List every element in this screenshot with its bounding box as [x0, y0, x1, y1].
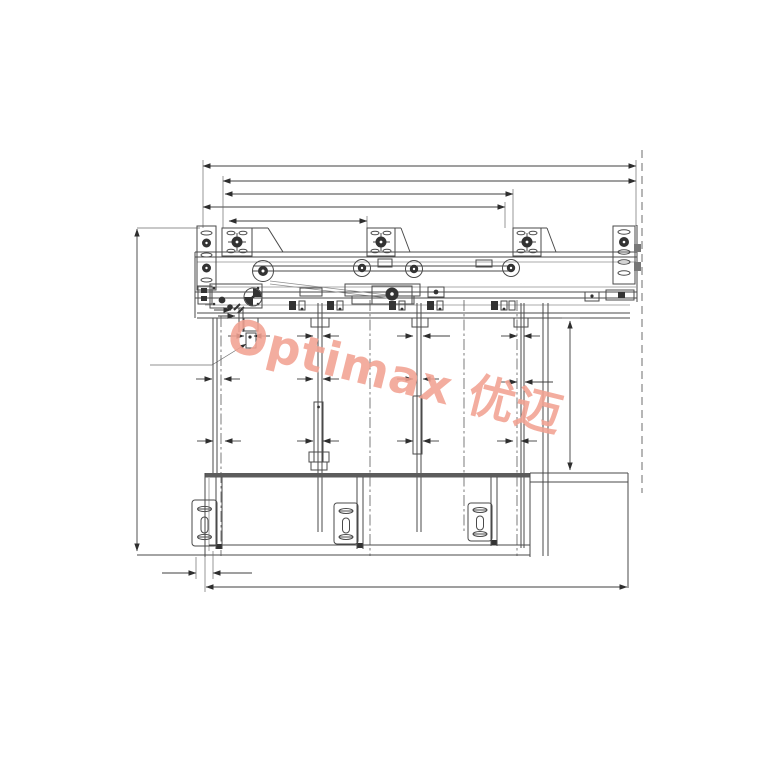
hanger-gusset-brackets [197, 226, 641, 290]
screenshot-canvas: Optimax 优迈 [0, 0, 760, 760]
door-hangers [289, 301, 515, 310]
end-bracket-left [197, 226, 216, 290]
bottom-dimension-lines [162, 551, 627, 592]
sill-assembly [137, 473, 628, 588]
sill-bracket-plate [468, 503, 492, 541]
belt-and-pulleys [253, 259, 520, 304]
top-dimension-lines [203, 160, 636, 228]
sill-bracket-plate [334, 503, 358, 544]
left-dimension-line [137, 228, 200, 551]
